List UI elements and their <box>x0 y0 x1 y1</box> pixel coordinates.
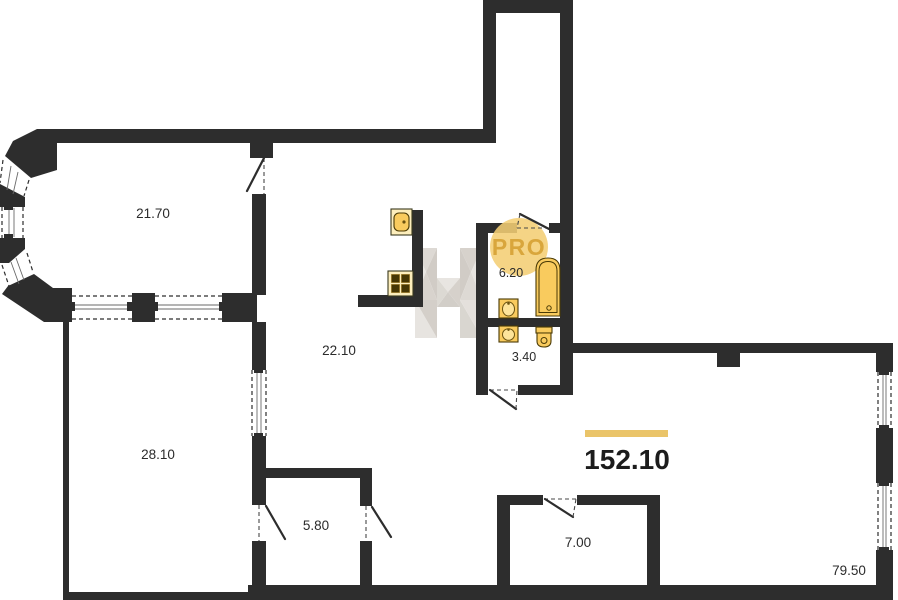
room-area-label-5-80: 5.80 <box>303 518 329 533</box>
room-area-label-79-50: 79.50 <box>832 563 866 578</box>
total-area-callout: 152.10 <box>584 430 670 475</box>
windows <box>0 160 891 552</box>
stove-icon <box>388 271 413 296</box>
floor-plan: PRO <box>0 0 898 600</box>
room-area-label-22-10: 22.10 <box>322 343 356 358</box>
room-area-label-3-40: 3.40 <box>512 350 536 364</box>
room-area-label-7-00: 7.00 <box>565 535 591 550</box>
door-toilet <box>490 390 517 409</box>
floor-plan-canvas: PRO <box>0 0 898 600</box>
door-28-10-to-5-80 <box>259 505 285 541</box>
door-5-80-to-main <box>366 506 391 541</box>
room-area-label-21-70: 21.70 <box>136 206 170 221</box>
door-room-21-70 <box>247 158 264 194</box>
room-area-label-28-10: 28.10 <box>141 447 175 462</box>
toilet-icon <box>536 327 552 347</box>
kitchen-sink-icon <box>391 209 412 235</box>
washbasin-icon <box>499 299 518 318</box>
watermark-logo-icon <box>415 248 482 338</box>
door-room-7-00 <box>544 499 576 517</box>
washbasin-icon <box>499 326 518 342</box>
room-area-label-6-20: 6.20 <box>499 266 523 280</box>
pro-badge-label: PRO <box>492 234 546 260</box>
bathtub-icon <box>536 258 560 316</box>
total-area-label: 152.10 <box>584 444 670 475</box>
total-area-underline <box>585 430 668 437</box>
